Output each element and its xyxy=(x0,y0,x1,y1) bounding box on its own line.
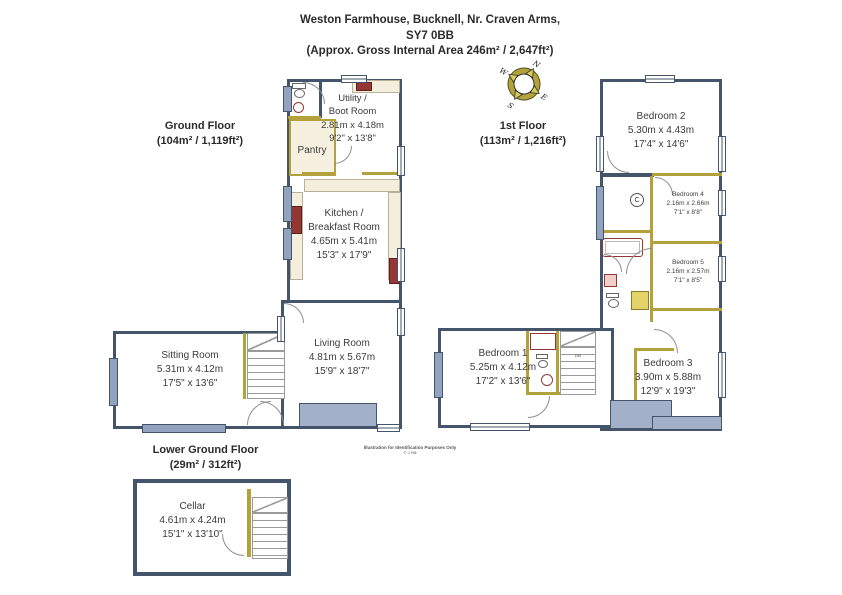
compass-north-label: N xyxy=(530,58,542,70)
room-name: Pantry xyxy=(287,144,337,158)
page-title: Weston Farmhouse, Bucknell, Nr. Craven A… xyxy=(230,13,630,60)
room-name: Utility / xyxy=(310,92,395,105)
first-floor-label: 1st Floor (113m² / 1,216ft²) xyxy=(448,119,598,150)
room-dims-m: 2.16m x 2.57m xyxy=(656,268,720,277)
room-dims-ft: 15'9" x 18'7" xyxy=(294,365,390,379)
title-line-3: (Approx. Gross Internal Area 246m² / 2,6… xyxy=(230,44,630,60)
room-name: Bedroom 1 xyxy=(448,347,558,361)
room-dims-m: 4.61m x 4.24m xyxy=(140,514,245,528)
wall-segment xyxy=(652,173,722,176)
room-dims-m: 4.81m x 5.67m xyxy=(294,351,390,365)
wall-segment xyxy=(653,308,722,311)
window xyxy=(283,228,292,260)
wall-segment xyxy=(600,173,654,177)
living-room-label: Living Room 4.81m x 5.67m 15'9" x 18'7" xyxy=(294,337,390,379)
bedroom3-label: Bedroom 3 3.90m x 5.88m 12'9" x 19'3" xyxy=(617,357,719,399)
window xyxy=(283,86,292,112)
room-name: Living Room xyxy=(294,337,390,351)
lower-floor-area: (29m² / 312ft²) xyxy=(118,458,293,473)
shower-cubicle-icon xyxy=(631,291,649,310)
room-name: Cellar xyxy=(140,500,245,514)
gf-staircase xyxy=(247,351,285,399)
kitchen-worktop-top xyxy=(304,179,400,192)
room-dims-m: 5.31m x 4.12m xyxy=(133,363,247,377)
first-floor-name: 1st Floor xyxy=(448,119,598,134)
room-dims-m: 4.65m x 5.41m xyxy=(298,235,390,249)
window xyxy=(434,352,443,398)
window xyxy=(645,75,675,83)
window xyxy=(341,75,367,83)
room-dims-m: 2.16m x 2.66m xyxy=(656,200,720,209)
window xyxy=(397,308,405,336)
room-name: Sitting Room xyxy=(133,349,247,363)
bedroom2-label: Bedroom 2 5.30m x 4.43m 17'4" x 14'6" xyxy=(610,110,712,152)
lower-ground-floor-label: Lower Ground Floor (29m² / 312ft²) xyxy=(118,443,293,474)
room-dims-m: 3.90m x 5.88m xyxy=(617,371,719,385)
bathroom-toilet-icon xyxy=(606,293,619,298)
window xyxy=(596,136,604,172)
stairs-down-label: DN xyxy=(561,353,595,358)
room-dims-ft: 15'1" x 13'10" xyxy=(140,528,245,542)
title-line-2: SY7 0BB xyxy=(230,29,630,45)
bedroom1-label: Bedroom 1 5.25m x 4.12m 17'2" x 13'6" xyxy=(448,347,558,389)
compass-east-label: E xyxy=(539,91,550,102)
window xyxy=(283,186,292,222)
disclaimer-line-2: © J Hill xyxy=(330,450,490,455)
wall-segment xyxy=(362,172,400,175)
room-dims-ft: 7'1" x 8'8" xyxy=(656,209,720,218)
room-name: Bedroom 5 xyxy=(656,259,720,268)
window xyxy=(397,146,405,176)
room-name: Breakfast Room xyxy=(298,221,390,235)
ground-floor-name: Ground Floor xyxy=(120,119,280,134)
window xyxy=(470,423,530,431)
cupboard-symbol: C xyxy=(630,193,644,207)
floorplan-canvas: Weston Farmhouse, Bucknell, Nr. Craven A… xyxy=(0,0,842,595)
room-dims-m: 5.30m x 4.43m xyxy=(610,124,712,138)
utility-sink xyxy=(356,82,372,91)
wall-segment xyxy=(302,172,334,175)
room-dims-ft: 7'1" x 8'5" xyxy=(656,277,720,286)
window xyxy=(397,248,405,282)
utility-room-label: Utility / Boot Room 2.81m x 4.18m 9'2" x… xyxy=(310,92,395,145)
ground-floor-label: Ground Floor (104m² / 1,119ft²) xyxy=(120,119,280,150)
cellar-staircase xyxy=(252,513,288,559)
cellar-stairs-winder xyxy=(252,497,288,513)
bedroom5-label: Bedroom 5 2.16m x 2.57m 7'1" x 8'5" xyxy=(656,259,720,285)
room-dims-m: 5.25m x 4.12m xyxy=(448,361,558,375)
bathroom-toilet-bowl-icon xyxy=(608,299,619,308)
room-name: Bedroom 3 xyxy=(617,357,719,371)
kitchen-label: Kitchen / Breakfast Room 4.65m x 5.41m 1… xyxy=(298,207,390,263)
ground-floor-area: (104m² / 1,119ft²) xyxy=(120,134,280,149)
lower-floor-name: Lower Ground Floor xyxy=(118,443,293,458)
window xyxy=(142,424,226,433)
sitting-room-label: Sitting Room 5.31m x 4.12m 17'5" x 13'6" xyxy=(133,349,247,391)
window xyxy=(718,352,726,398)
bedroom4-label: Bedroom 4 2.16m x 2.66m 7'1" x 8'8" xyxy=(656,191,720,217)
room-dims-ft: 17'2" x 13'6" xyxy=(448,375,558,389)
pantry-label: Pantry xyxy=(287,144,337,158)
room-name: Bedroom 4 xyxy=(656,191,720,200)
wall-segment xyxy=(653,241,722,244)
wall-segment xyxy=(600,230,652,233)
bedroom3-chimney-breast xyxy=(652,416,722,430)
first-floor-area: (113m² / 1,216ft²) xyxy=(448,134,598,149)
compass-south-label: S xyxy=(506,100,515,110)
window xyxy=(596,186,604,240)
ff-stairs-winder xyxy=(560,331,596,347)
room-name: Boot Room xyxy=(310,105,395,118)
living-room-fireplace xyxy=(299,403,377,427)
bathroom-basin-icon xyxy=(604,274,617,287)
window xyxy=(109,358,118,406)
wall-segment xyxy=(247,489,251,557)
dn-text: DN xyxy=(575,353,581,358)
room-dims-ft: 15'3" x 17'9" xyxy=(298,249,390,263)
room-dims-ft: 17'5" x 13'6" xyxy=(133,377,247,391)
window xyxy=(377,424,400,432)
cupboard-letter: C xyxy=(634,197,639,204)
compass-west-label: W xyxy=(498,66,510,78)
window xyxy=(718,136,726,172)
room-dims-m: 2.81m x 4.18m xyxy=(310,119,395,132)
compass-rose-icon: N E S W xyxy=(494,54,554,114)
cellar-label: Cellar 4.61m x 4.24m 15'1" x 13'10" xyxy=(140,500,245,542)
disclaimer: Illustration for Identification Purposes… xyxy=(330,445,490,455)
title-line-1: Weston Farmhouse, Bucknell, Nr. Craven A… xyxy=(230,13,630,29)
room-name: Kitchen / xyxy=(298,207,390,221)
room-dims-ft: 17'4" x 14'6" xyxy=(610,138,712,152)
room-dims-ft: 12'9" x 19'3" xyxy=(617,385,719,399)
room-name: Bedroom 2 xyxy=(610,110,712,124)
